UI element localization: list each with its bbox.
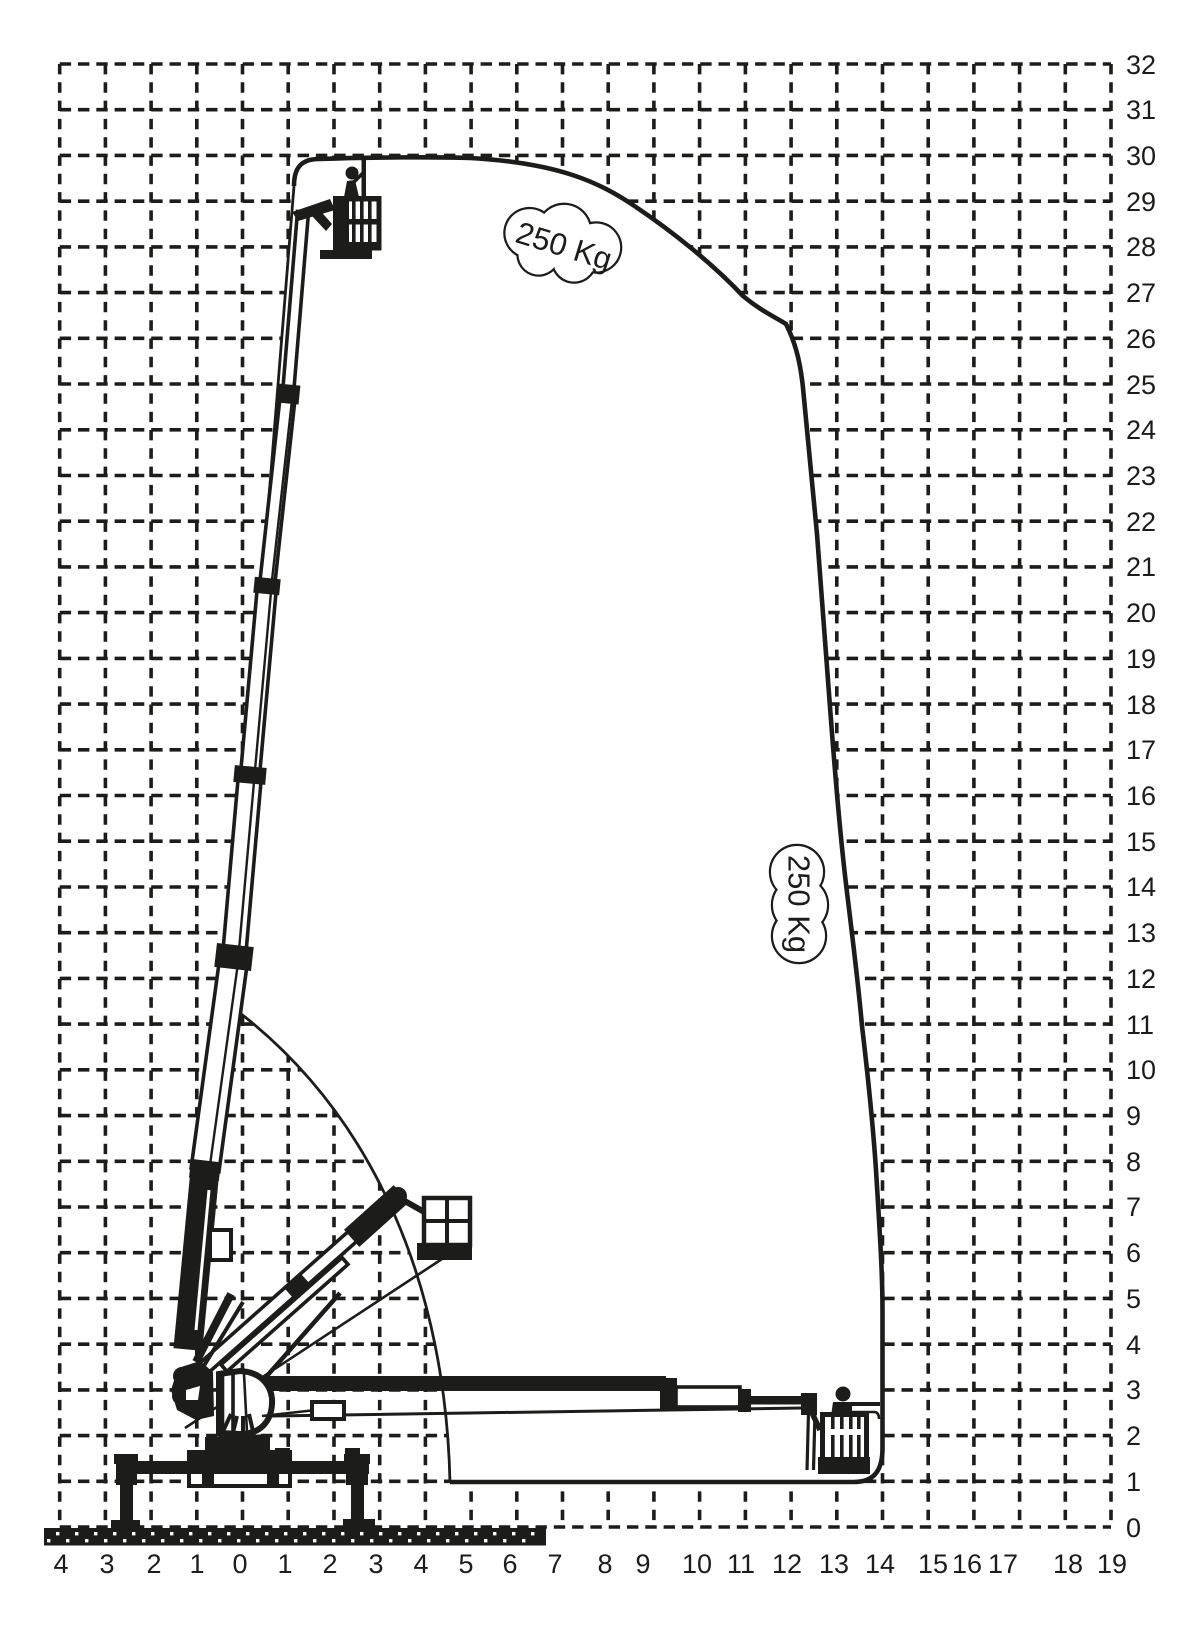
- svg-text:31: 31: [1126, 95, 1156, 125]
- svg-text:21: 21: [1126, 552, 1156, 582]
- svg-text:19: 19: [1126, 644, 1156, 674]
- svg-text:3: 3: [368, 1549, 383, 1579]
- svg-text:15: 15: [918, 1549, 948, 1579]
- svg-text:2: 2: [146, 1549, 161, 1579]
- svg-text:4: 4: [413, 1549, 428, 1579]
- svg-text:3: 3: [99, 1549, 114, 1579]
- svg-text:13: 13: [819, 1549, 849, 1579]
- svg-text:17: 17: [988, 1549, 1018, 1579]
- svg-text:7: 7: [1126, 1192, 1141, 1222]
- svg-text:25: 25: [1126, 370, 1156, 400]
- svg-text:19: 19: [1097, 1549, 1127, 1579]
- svg-text:10: 10: [1126, 1055, 1156, 1085]
- svg-text:28: 28: [1126, 232, 1156, 262]
- svg-text:29: 29: [1126, 187, 1156, 217]
- svg-text:11: 11: [1126, 1010, 1154, 1040]
- svg-text:2: 2: [322, 1549, 337, 1579]
- svg-text:0: 0: [1126, 1513, 1141, 1543]
- svg-text:17: 17: [1126, 735, 1156, 765]
- svg-text:5: 5: [1126, 1284, 1141, 1314]
- svg-text:8: 8: [1126, 1147, 1141, 1177]
- svg-text:10: 10: [682, 1549, 712, 1579]
- svg-text:1: 1: [189, 1549, 204, 1579]
- svg-text:4: 4: [53, 1549, 68, 1579]
- svg-text:12: 12: [772, 1549, 802, 1579]
- svg-text:14: 14: [865, 1549, 895, 1579]
- svg-text:4: 4: [1126, 1330, 1141, 1360]
- svg-text:7: 7: [547, 1549, 562, 1579]
- svg-text:13: 13: [1126, 918, 1156, 948]
- svg-text:23: 23: [1126, 461, 1156, 491]
- svg-text:8: 8: [597, 1549, 612, 1579]
- svg-text:6: 6: [1126, 1238, 1141, 1268]
- svg-text:16: 16: [952, 1549, 982, 1579]
- svg-text:0: 0: [232, 1549, 247, 1579]
- svg-text:15: 15: [1126, 827, 1156, 857]
- svg-text:9: 9: [635, 1549, 650, 1579]
- svg-text:11: 11: [727, 1549, 755, 1579]
- svg-text:26: 26: [1126, 324, 1156, 354]
- svg-text:1: 1: [1126, 1467, 1141, 1497]
- svg-text:12: 12: [1126, 964, 1156, 994]
- svg-text:32: 32: [1126, 50, 1156, 80]
- svg-text:22: 22: [1126, 507, 1156, 537]
- svg-text:20: 20: [1126, 598, 1156, 628]
- svg-text:24: 24: [1126, 415, 1156, 445]
- svg-text:30: 30: [1126, 141, 1156, 171]
- svg-text:2: 2: [1126, 1421, 1141, 1451]
- svg-text:5: 5: [458, 1549, 473, 1579]
- svg-text:1: 1: [277, 1549, 292, 1579]
- svg-text:250 Kg: 250 Kg: [782, 855, 817, 953]
- svg-text:9: 9: [1126, 1101, 1141, 1131]
- svg-text:16: 16: [1126, 781, 1156, 811]
- svg-text:18: 18: [1053, 1549, 1083, 1579]
- svg-text:14: 14: [1126, 872, 1156, 902]
- svg-text:6: 6: [502, 1549, 517, 1579]
- svg-text:27: 27: [1126, 278, 1156, 308]
- svg-text:3: 3: [1126, 1375, 1141, 1405]
- svg-text:18: 18: [1126, 690, 1156, 720]
